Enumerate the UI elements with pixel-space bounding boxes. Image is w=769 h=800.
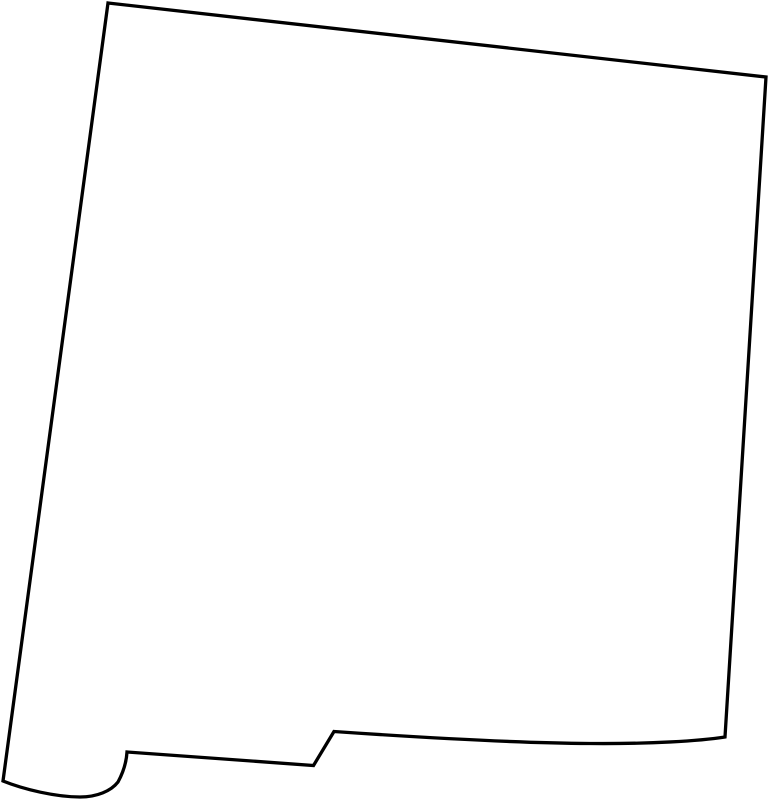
state-border-new-mexico <box>3 3 766 797</box>
map-canvas <box>0 0 769 800</box>
new-mexico-outline-map <box>0 0 769 800</box>
